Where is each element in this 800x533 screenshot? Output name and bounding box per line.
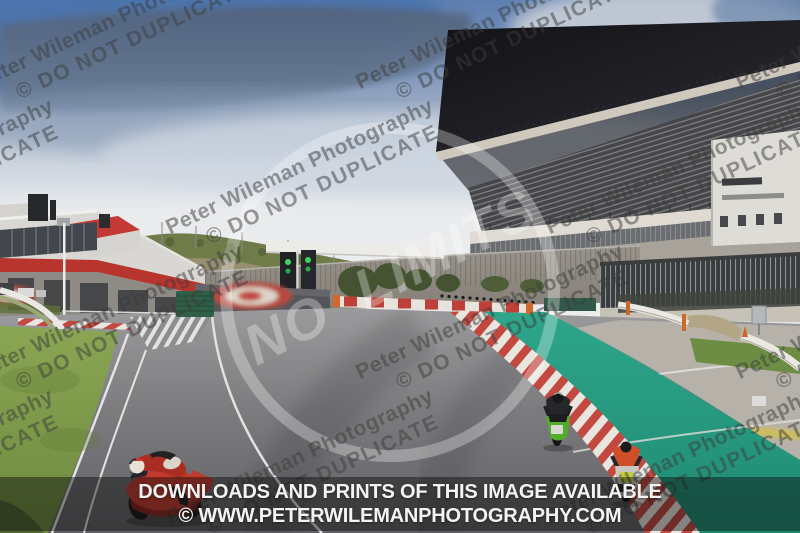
flagpole — [63, 223, 66, 320]
photo-scene — [0, 0, 800, 533]
green-light — [285, 259, 291, 265]
racetrack-photo: NO LIMITS Peter Wileman Photography© DO … — [0, 0, 800, 533]
green-light — [305, 257, 311, 263]
banner-line1: DOWNLOADS AND PRINTS OF THIS IMAGE AVAIL… — [138, 481, 661, 504]
photographer-banner: DOWNLOADS AND PRINTS OF THIS IMAGE AVAIL… — [0, 477, 800, 531]
rider-helmet — [621, 442, 632, 453]
scoreboard-tower — [28, 194, 48, 221]
green-tecpro — [176, 291, 214, 317]
banner-line2: © WWW.PETERWILEMANPHOTOGRAPHY.COM — [179, 505, 622, 528]
painted-logo — [212, 282, 292, 310]
